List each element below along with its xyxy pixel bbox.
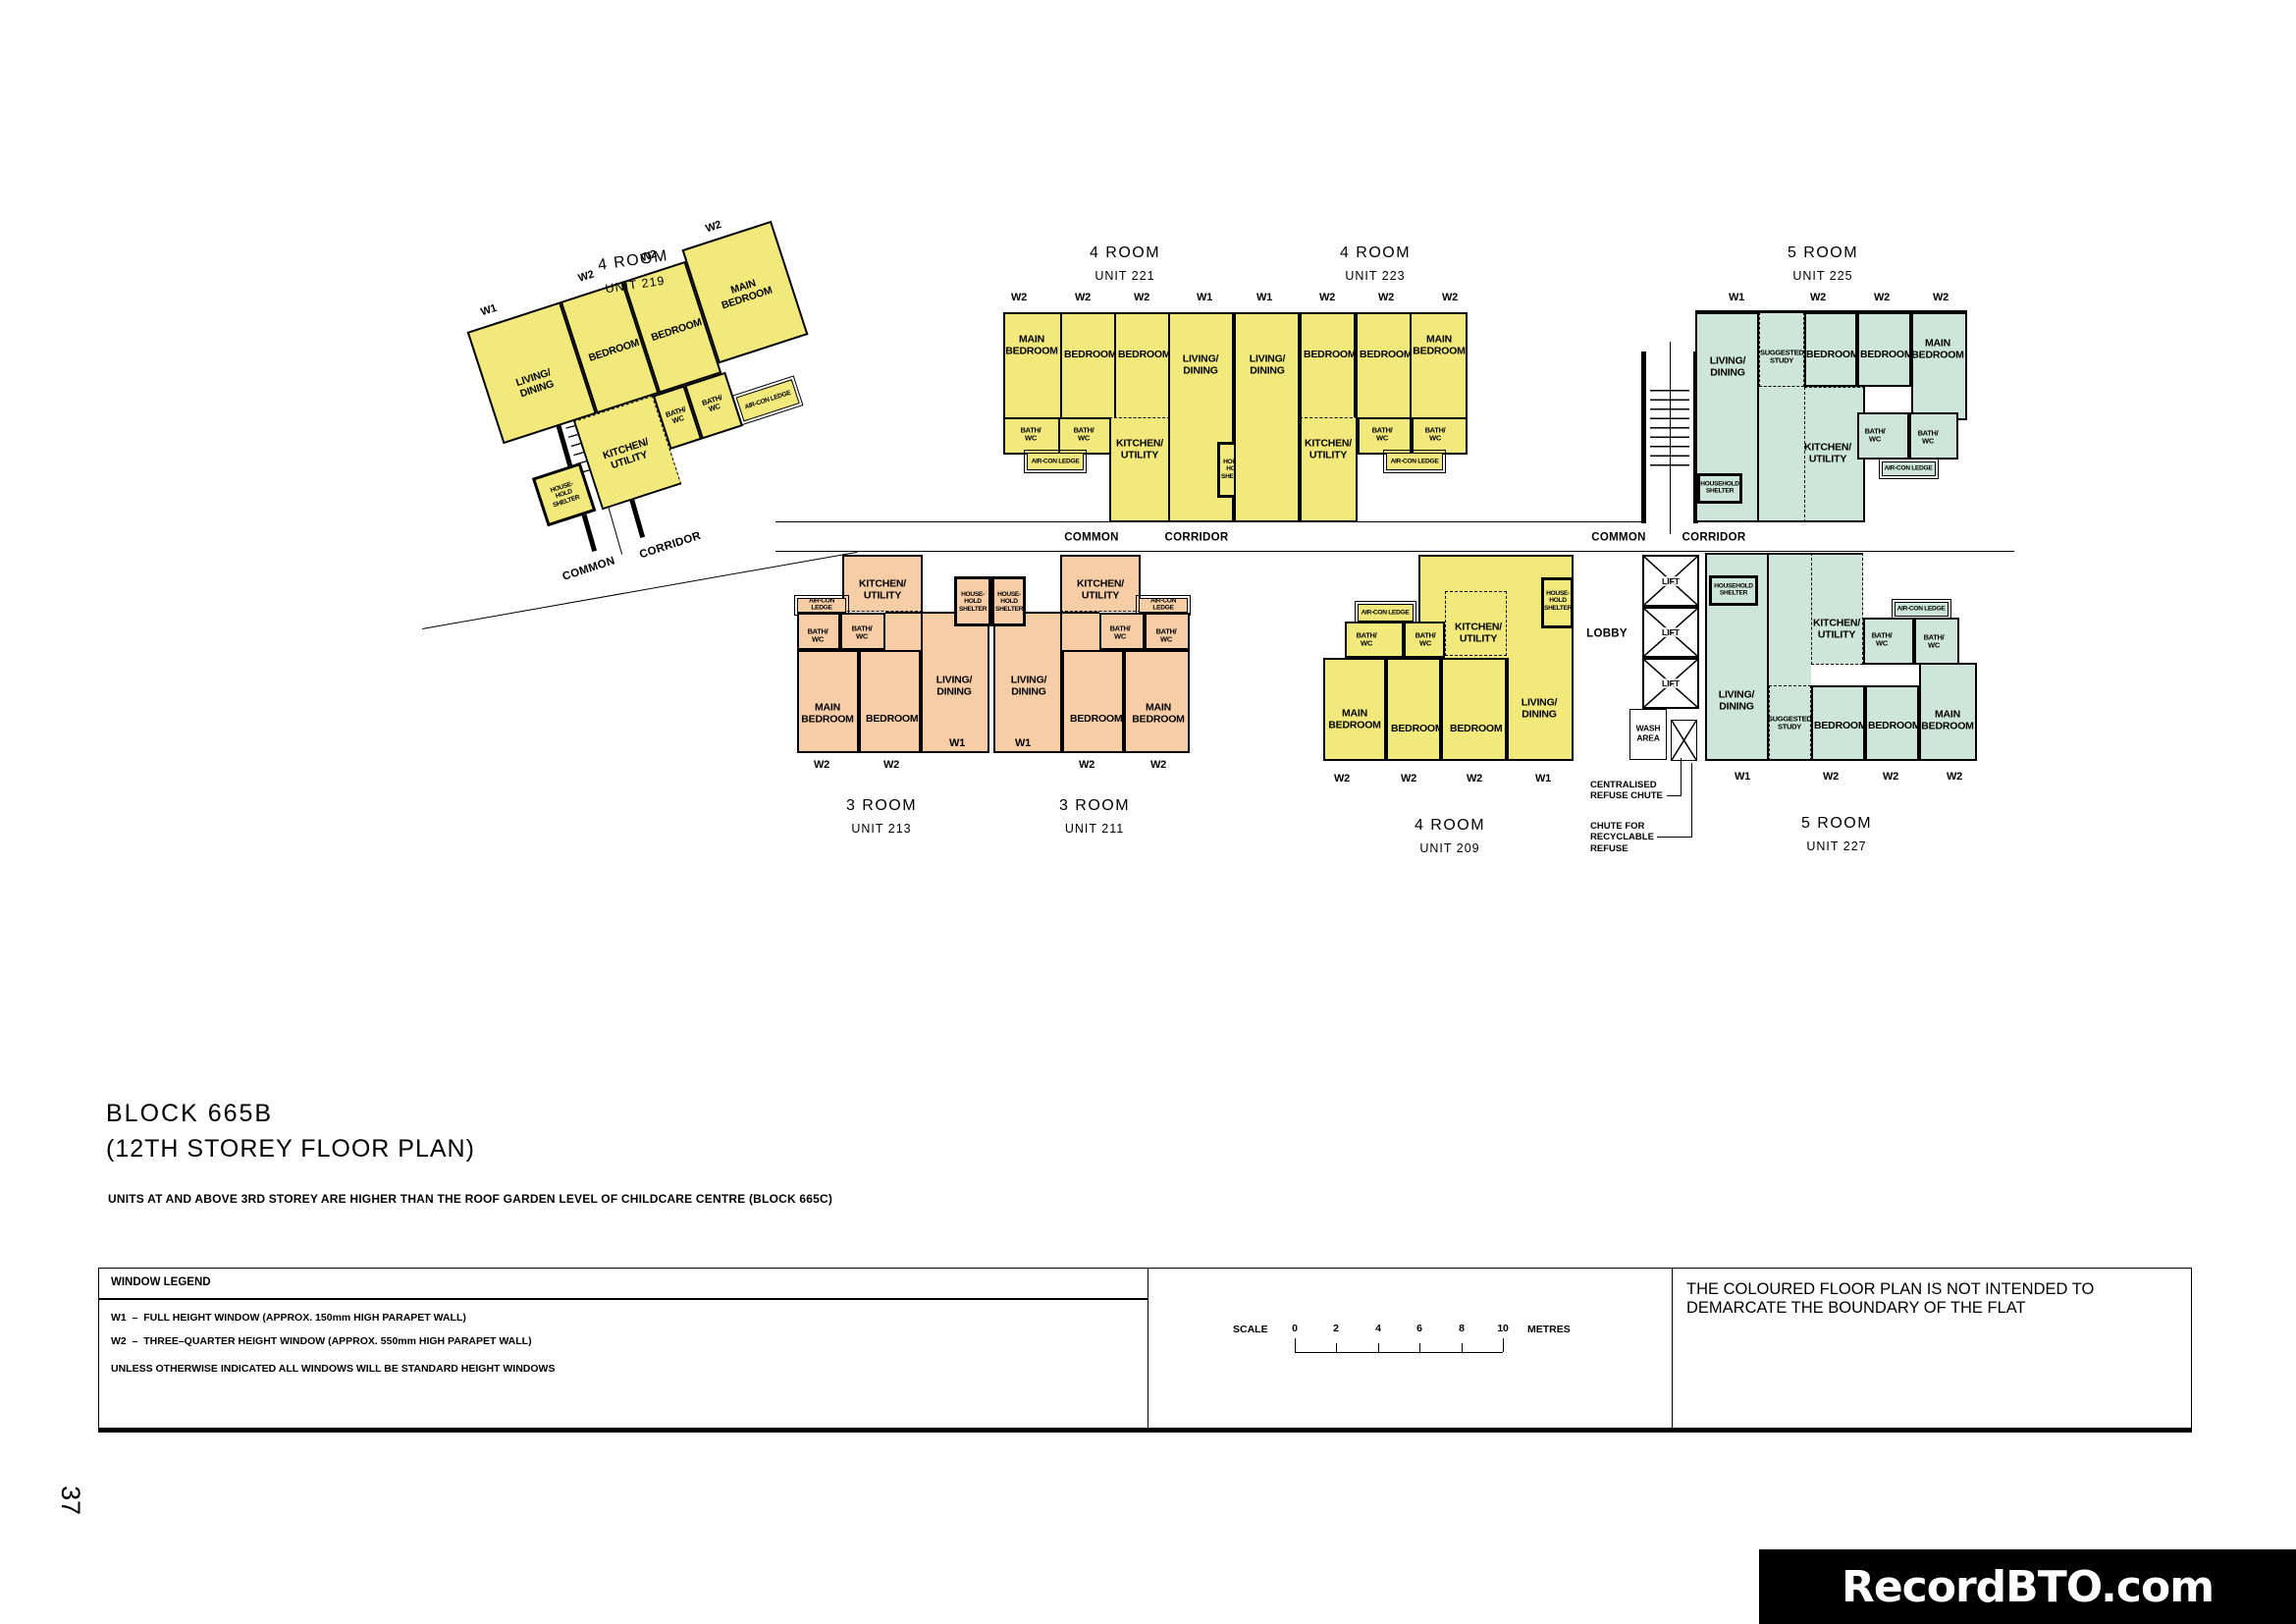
window-label-w2: W2 — [1011, 292, 1027, 303]
lift-label: LIFT — [1661, 576, 1681, 586]
corridor-label: CORRIDOR — [1682, 532, 1745, 545]
room-label: LIVING/ DINING — [1174, 353, 1227, 377]
window-label-w1: W1 — [1197, 292, 1212, 303]
room-label: HOUSEHOLD SHELTER — [1700, 481, 1739, 496]
unit-221-main-bedroom — [1003, 312, 1062, 419]
unit-225-main-bedroom — [1911, 312, 1967, 420]
room-label: BATH/ WC — [1153, 628, 1179, 645]
room-label: BATH/ WC — [849, 625, 875, 642]
room-label: BATH/ WC — [1914, 430, 1942, 447]
unit-221-type: 4 ROOM — [1090, 244, 1160, 262]
room-label: BEDROOM — [1118, 350, 1165, 361]
scale-tick-0: 0 — [1292, 1324, 1298, 1335]
scale-tick-8: 8 — [1459, 1324, 1465, 1335]
room-label: BATH/ WC — [1017, 427, 1044, 444]
legend-w2-line: W2 – THREE–QUARTER HEIGHT WINDOW (APPROX… — [111, 1335, 532, 1347]
window-label-w1: W1 — [1735, 771, 1750, 783]
unit-225-top-wall — [1695, 310, 1967, 313]
refuse-chute-label: CENTRALISED REFUSE CHUTE — [1590, 780, 1681, 802]
room-label: KITCHEN/ UTILITY — [1300, 438, 1357, 461]
unit-213-hall — [885, 612, 921, 650]
room-label: HOUSE- HOLD SHELTER — [959, 591, 987, 613]
window-label-w2: W2 — [1442, 292, 1458, 303]
stair-centerline — [1670, 342, 1671, 534]
scale-tick-6: 6 — [1416, 1324, 1422, 1335]
legend-note: UNLESS OTHERWISE INDICATED ALL WINDOWS W… — [111, 1363, 555, 1375]
plan-title: (12TH STOREY FLOOR PLAN) — [106, 1135, 475, 1164]
window-label-w2: W2 — [814, 759, 829, 771]
scale-tick-10: 10 — [1497, 1324, 1508, 1335]
lift-label: LIFT — [1661, 678, 1681, 688]
window-label-w2: W2 — [1319, 292, 1335, 303]
room-label: BEDROOM — [866, 714, 913, 726]
room-label: BEDROOM — [1814, 721, 1861, 732]
scale-bar — [1295, 1352, 1503, 1353]
unit-223-bedroom-2 — [1356, 312, 1412, 419]
recyclable-chute-label: CHUTE FOR RECYCLABLE REFUSE — [1590, 821, 1669, 854]
unit-211-number: UNIT 211 — [1065, 822, 1124, 836]
window-label-w2: W2 — [1378, 292, 1394, 303]
window-label-w2: W2 — [1947, 771, 1962, 783]
window-label-w2: W2 — [1079, 759, 1095, 771]
room-label: BEDROOM — [1868, 721, 1915, 732]
watermark-text: RecordBTO.com — [1842, 1562, 2214, 1612]
lobby-label: LOBBY — [1586, 628, 1628, 641]
window-label-w2: W2 — [1883, 771, 1898, 783]
room-label: AIR-CON LEDGE — [1140, 598, 1187, 613]
window-label-w1: W1 — [479, 302, 498, 319]
unit-225-number: UNIT 225 — [1792, 269, 1852, 283]
unit-221-kitchen — [1109, 417, 1170, 522]
room-label: MAIN BEDROOM — [1004, 334, 1059, 357]
unit-225-hall — [1759, 387, 1804, 522]
unit-209-number: UNIT 209 — [1419, 841, 1479, 855]
room-label: LIVING/ DINING — [1002, 675, 1055, 698]
staircase-right — [1641, 352, 1698, 523]
chute-x-icon — [1672, 721, 1696, 760]
room-label: HOUSEHOLD SHELTER — [1714, 583, 1753, 598]
room-label: KITCHEN/ UTILITY — [1072, 578, 1129, 602]
room-label: HOUSE- HOLD SHELTER — [1544, 590, 1572, 612]
lift-1: LIFT — [1642, 555, 1699, 607]
room-label: BATH/ WC — [805, 628, 830, 645]
unit-227-number: UNIT 227 — [1806, 839, 1866, 853]
block-title: BLOCK 665B — [106, 1100, 273, 1128]
room-label: BATH/ WC — [1353, 632, 1380, 649]
window-label-w1: W1 — [949, 737, 965, 749]
room-label: SUGGESTED STUDY — [1760, 350, 1803, 366]
lift-label: LIFT — [1661, 627, 1681, 637]
legend-header-divider — [99, 1298, 1148, 1300]
info-divider-2 — [1672, 1269, 1673, 1431]
room-label: AIR-CON LEDGE — [1388, 458, 1441, 464]
room-label: KITCHEN/ UTILITY — [854, 578, 911, 602]
room-label: BEDROOM — [1391, 724, 1436, 735]
plan-note: UNITS AT AND ABOVE 3RD STOREY ARE HIGHER… — [108, 1192, 832, 1206]
unit-223-kitchen — [1300, 417, 1358, 522]
unit-227-kitchen — [1811, 553, 1863, 665]
unit-223-main-bedroom — [1410, 312, 1468, 419]
room-label: BATH/ WC — [1868, 632, 1896, 649]
window-label-w2: W2 — [1823, 771, 1839, 783]
corridor-lower-line — [775, 551, 2014, 552]
scale-bar-tick — [1295, 1338, 1296, 1352]
room-label: SUGGESTED STUDY — [1768, 716, 1811, 732]
scale-tick-2: 2 — [1333, 1324, 1339, 1335]
room-label: KITCHEN/ UTILITY — [1809, 618, 1864, 641]
unit-227-hall — [1769, 553, 1811, 685]
unit-223-living — [1234, 312, 1300, 522]
room-label: KITCHEN/ UTILITY — [1111, 438, 1168, 461]
page-number: 37 — [56, 1486, 85, 1515]
window-label-w2: W2 — [1401, 773, 1416, 785]
unit-223-number: UNIT 223 — [1345, 269, 1405, 283]
unit-211-bedroom — [1062, 650, 1124, 753]
window-label-w1: W1 — [1535, 773, 1551, 785]
disclaimer-text: THE COLOURED FLOOR PLAN IS NOT INTENDED … — [1686, 1280, 2189, 1318]
window-label-w2: W2 — [1810, 292, 1826, 303]
info-divider-1 — [1148, 1269, 1148, 1431]
room-label: MAIN BEDROOM — [1910, 338, 1965, 361]
room-label: MAIN BEDROOM — [800, 702, 855, 726]
unit-221-bedroom-1 — [1060, 312, 1116, 419]
room-label: MAIN BEDROOM — [1327, 708, 1382, 731]
room-label: BEDROOM — [1064, 350, 1111, 361]
room-label: BEDROOM — [1070, 714, 1117, 726]
window-label-w2: W2 — [1334, 773, 1350, 785]
window-label-w2: W2 — [1134, 292, 1149, 303]
lift-2: LIFT — [1642, 607, 1699, 658]
window-label-w2: W2 — [704, 219, 722, 236]
unit-221-number: UNIT 221 — [1095, 269, 1154, 283]
scale-bar-tick — [1462, 1343, 1463, 1352]
common-label: COMMON — [1591, 532, 1645, 545]
room-label: AIR-CON LEDGE — [1360, 609, 1411, 616]
scale-tick-4: 4 — [1375, 1324, 1381, 1335]
room-label: BATH/ WC — [1368, 427, 1396, 444]
room-label: AIR-CON LEDGE — [1029, 458, 1082, 464]
room-label: BATH/ WC — [1107, 625, 1133, 642]
room-label: BEDROOM — [1806, 350, 1853, 361]
room-label: AIR-CON LEDGE — [1883, 464, 1934, 471]
room-label: LIVING/ DINING — [1710, 689, 1763, 713]
window-label-w1: W1 — [1256, 292, 1272, 303]
room-label: KITCHEN/ UTILITY — [1799, 442, 1856, 465]
room-label: BEDROOM — [1860, 350, 1907, 361]
legend-w1-line: W1 – FULL HEIGHT WINDOW (APPROX. 150mm H… — [111, 1312, 466, 1324]
room-label: KITCHEN/ UTILITY — [1451, 622, 1506, 645]
room-label: BATH/ WC — [1413, 632, 1438, 649]
window-legend-title: WINDOW LEGEND — [111, 1276, 211, 1288]
unit-211-type: 3 ROOM — [1059, 797, 1130, 815]
room-label: BATH/ WC — [1920, 634, 1948, 651]
scale-label: SCALE — [1233, 1324, 1268, 1335]
unit-209-type: 4 ROOM — [1415, 817, 1485, 835]
unit-213-number: UNIT 213 — [851, 822, 911, 836]
window-label-w2: W2 — [1933, 292, 1949, 303]
window-label-w1: W1 — [1729, 292, 1744, 303]
scale-bar-tick — [1336, 1343, 1337, 1352]
unit-209-bedroom-2 — [1441, 658, 1507, 761]
common-label: COMMON — [1064, 532, 1118, 545]
room-label: LIVING/ DINING — [1701, 355, 1754, 379]
wash-area-label: WASH AREA — [1632, 724, 1664, 742]
room-label: AIR-CON LEDGE — [798, 598, 845, 613]
corridor-diagonal-line — [422, 552, 857, 629]
unit-213-type: 3 ROOM — [846, 797, 917, 815]
unit-223-bedroom-1 — [1300, 312, 1356, 419]
room-label: BEDROOM — [1360, 350, 1407, 361]
lift-3: LIFT — [1642, 658, 1699, 709]
unit-213-bedroom — [859, 650, 921, 753]
room-label: MAIN BEDROOM — [1920, 709, 1975, 732]
scale-bar-tick — [1419, 1343, 1420, 1352]
window-label-w2: W2 — [1075, 292, 1091, 303]
room-label: LIVING/ DINING — [928, 675, 981, 698]
window-label-w2: W2 — [883, 759, 899, 771]
room-label: BATH/ WC — [1861, 428, 1889, 445]
room-label: BEDROOM — [1450, 724, 1497, 735]
unit-227-type: 5 ROOM — [1801, 815, 1872, 833]
unit-223-type: 4 ROOM — [1340, 244, 1411, 262]
refuse-chute-box — [1671, 720, 1697, 761]
room-label: MAIN BEDROOM — [1412, 334, 1467, 357]
watermark-banner: RecordBTO.com — [1759, 1549, 2296, 1624]
window-label-w1: W1 — [1015, 737, 1031, 749]
floor-plan-page: LIVING/ DINING BEDROOM BEDROOM MAIN BEDR… — [0, 0, 2296, 1624]
room-label: LIVING/ DINING — [1513, 697, 1566, 721]
info-box: WINDOW LEGEND W1 – FULL HEIGHT WINDOW (A… — [98, 1268, 2192, 1433]
common-label-rotated: COMMON — [561, 555, 617, 583]
room-label: BATH/ WC — [1070, 427, 1097, 444]
room-label: AIR-CON LEDGE — [1896, 605, 1947, 612]
room-label: LIVING/ DINING — [1241, 353, 1294, 377]
room-label: MAIN BEDROOM — [1131, 702, 1186, 726]
corridor-label-rotated: CORRIDOR — [638, 530, 703, 562]
window-label-w2: W2 — [1150, 759, 1166, 771]
scale-bar-tick — [1378, 1343, 1379, 1352]
scale-unit: METRES — [1527, 1324, 1571, 1335]
room-label: BEDROOM — [1304, 350, 1351, 361]
window-label-w2: W2 — [1874, 292, 1890, 303]
room-label: BATH/ WC — [1421, 427, 1449, 444]
window-label-w2: W2 — [1467, 773, 1482, 785]
unit-211-hall — [1062, 612, 1099, 650]
scale-bar-tick — [1503, 1338, 1504, 1352]
unit-225-type: 5 ROOM — [1788, 244, 1858, 262]
room-label: HOUSE- HOLD SHELTER — [995, 591, 1023, 613]
corridor-label: CORRIDOR — [1164, 532, 1228, 545]
unit-221-bedroom-2 — [1114, 312, 1170, 419]
unit-209-bedroom-1 — [1386, 658, 1441, 761]
window-label-w2: W2 — [577, 268, 596, 285]
